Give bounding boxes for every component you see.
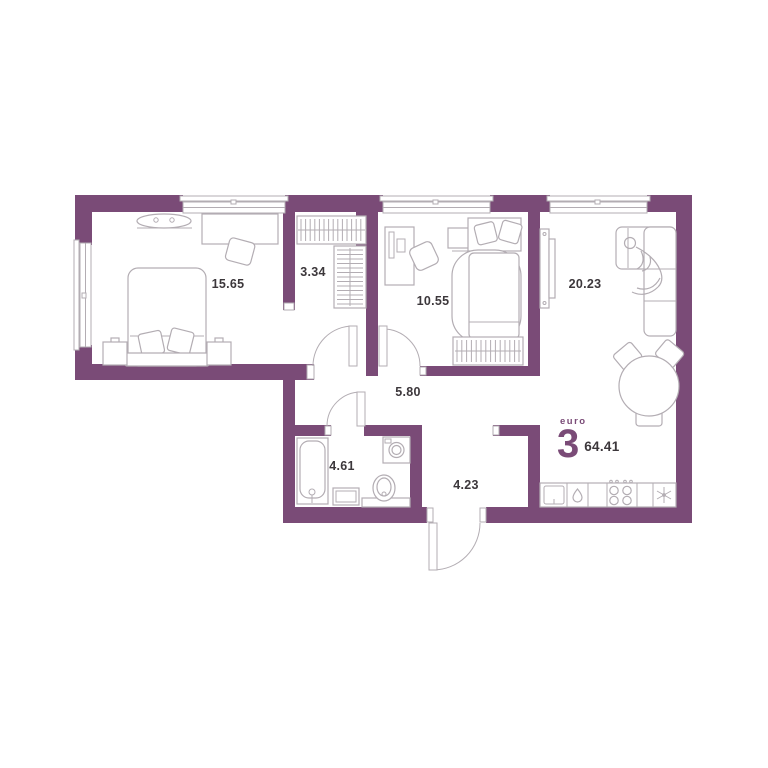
ceiling-lamp-icon xyxy=(137,214,192,228)
door-icon xyxy=(313,326,357,366)
tv-unit-icon xyxy=(540,229,555,308)
unit-rooms-count: 3 xyxy=(557,427,579,461)
nightstand-icon xyxy=(207,338,231,365)
window-icon xyxy=(74,240,91,350)
bathtub-icon xyxy=(297,438,328,504)
unit-type-badge: euro 3 64.41 xyxy=(557,416,620,461)
entrance-door-icon xyxy=(429,523,480,570)
bedroom-main-furniture xyxy=(103,214,278,366)
washing-machine-icon xyxy=(383,437,410,463)
door-icon xyxy=(327,392,365,426)
vanity-cabinet-icon xyxy=(333,488,359,505)
sink-icon xyxy=(362,475,410,507)
floor-plan: 15.65 3.34 10.55 20.23 5.80 4.61 4.23 eu… xyxy=(0,0,768,768)
hanger-rack-icon xyxy=(453,337,523,365)
hanger-rack-icon xyxy=(297,216,366,244)
kitchen-counter-icon xyxy=(540,480,676,507)
unit-total-area: 64.41 xyxy=(584,439,619,454)
room-label-wardrobe: 3.34 xyxy=(300,265,326,279)
room-label-bathroom: 4.61 xyxy=(329,459,355,473)
room-label-bedroom-main: 15.65 xyxy=(212,277,245,291)
window-icon xyxy=(380,196,493,213)
room-label-living-kitchen: 20.23 xyxy=(569,277,602,291)
window-icon xyxy=(180,196,288,213)
wardrobe-furniture xyxy=(297,216,366,308)
window-icon xyxy=(547,196,650,213)
nightstand-icon xyxy=(103,338,127,365)
desk-icon xyxy=(202,214,278,266)
double-bed-icon xyxy=(125,268,209,366)
hanger-rack-icon xyxy=(334,246,366,308)
floor-plan-drawing xyxy=(0,0,768,768)
room-label-bedroom-second: 10.55 xyxy=(417,294,450,308)
dining-table-icon xyxy=(612,339,684,426)
door-icon xyxy=(379,326,420,366)
room-label-corridor: 4.23 xyxy=(453,478,479,492)
desk-icon xyxy=(385,227,440,285)
bedroom-second-furniture xyxy=(385,218,523,365)
room-label-hallway: 5.80 xyxy=(395,385,421,399)
